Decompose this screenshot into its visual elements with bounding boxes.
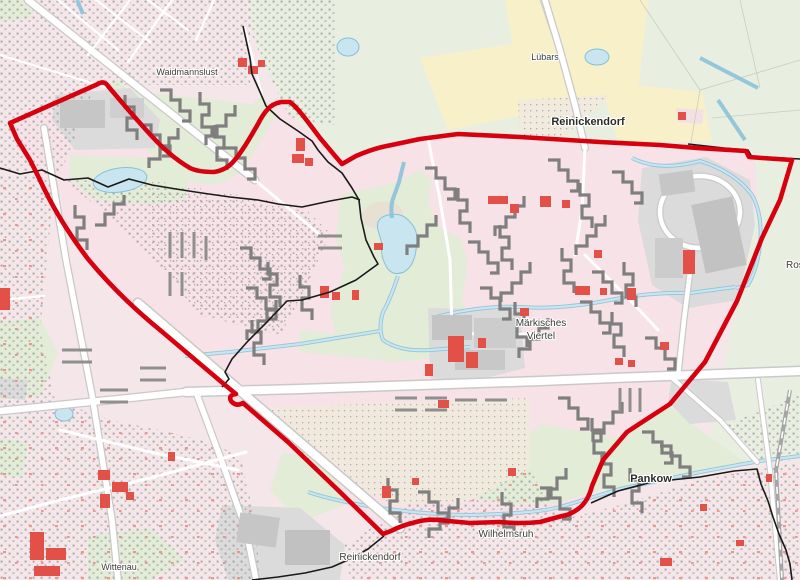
label-wilhelmsruh: Wilhelmsruh (478, 529, 533, 540)
label-reinickendorf-south: Reinickendorf (339, 552, 400, 563)
label-waidmannslust: Waidmannslust (156, 67, 218, 77)
label-maerkisches-viertel-line2: Viertel (527, 331, 555, 342)
label-reinickendorf-north: Reinickendorf (551, 116, 625, 128)
label-luebars: Lübars (531, 52, 559, 62)
label-rosenthal: Rosenthal (786, 260, 800, 271)
city-map: Lübars Reinickendorf Waidmannslust Märki… (0, 0, 800, 580)
label-wittenau: Wittenau (101, 562, 137, 572)
label-maerkisches-viertel-line1: Märkisches (516, 318, 567, 329)
map-canvas: Lübars Reinickendorf Waidmannslust Märki… (0, 0, 800, 580)
label-pankow: Pankow (630, 473, 672, 485)
